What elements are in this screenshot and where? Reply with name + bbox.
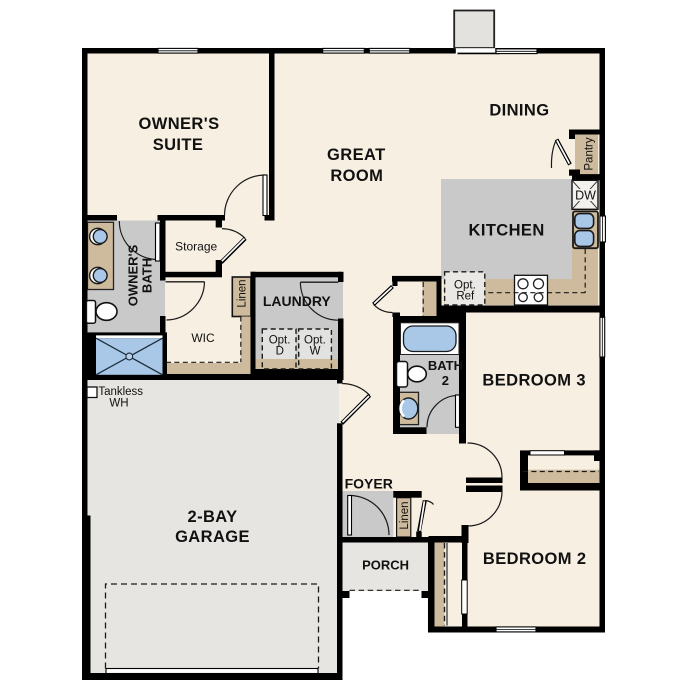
svg-text:Linen: Linen [236, 279, 248, 307]
svg-text:2-BAY: 2-BAY [188, 508, 238, 526]
svg-text:BATH: BATH [140, 258, 155, 293]
svg-text:2: 2 [442, 373, 449, 388]
svg-text:WH: WH [109, 398, 128, 410]
svg-text:Ref: Ref [456, 291, 475, 303]
svg-text:Storage: Storage [175, 239, 217, 253]
svg-text:BEDROOM 2: BEDROOM 2 [483, 550, 587, 568]
svg-text:SUITE: SUITE [153, 136, 204, 154]
svg-text:Tankless: Tankless [98, 386, 143, 398]
svg-text:W: W [310, 345, 321, 357]
svg-text:DINING: DINING [489, 102, 549, 120]
svg-text:GARAGE: GARAGE [175, 528, 250, 546]
svg-text:ROOM: ROOM [330, 167, 383, 185]
svg-text:Pantry: Pantry [583, 137, 595, 170]
svg-text:DW: DW [575, 188, 596, 202]
svg-text:GREAT: GREAT [327, 146, 386, 164]
svg-text:PORCH: PORCH [362, 558, 409, 573]
svg-text:OWNER'S: OWNER'S [139, 115, 220, 133]
svg-text:KITCHEN: KITCHEN [469, 222, 545, 240]
svg-text:BEDROOM 3: BEDROOM 3 [482, 372, 586, 390]
svg-text:BATH: BATH [428, 358, 463, 373]
svg-text:LAUNDRY: LAUNDRY [263, 293, 332, 309]
svg-text:D: D [276, 345, 284, 357]
svg-text:FOYER: FOYER [345, 475, 393, 491]
svg-text:Linen: Linen [399, 501, 411, 529]
svg-text:OWNER'S: OWNER'S [126, 244, 141, 306]
svg-text:WIC: WIC [191, 331, 215, 345]
